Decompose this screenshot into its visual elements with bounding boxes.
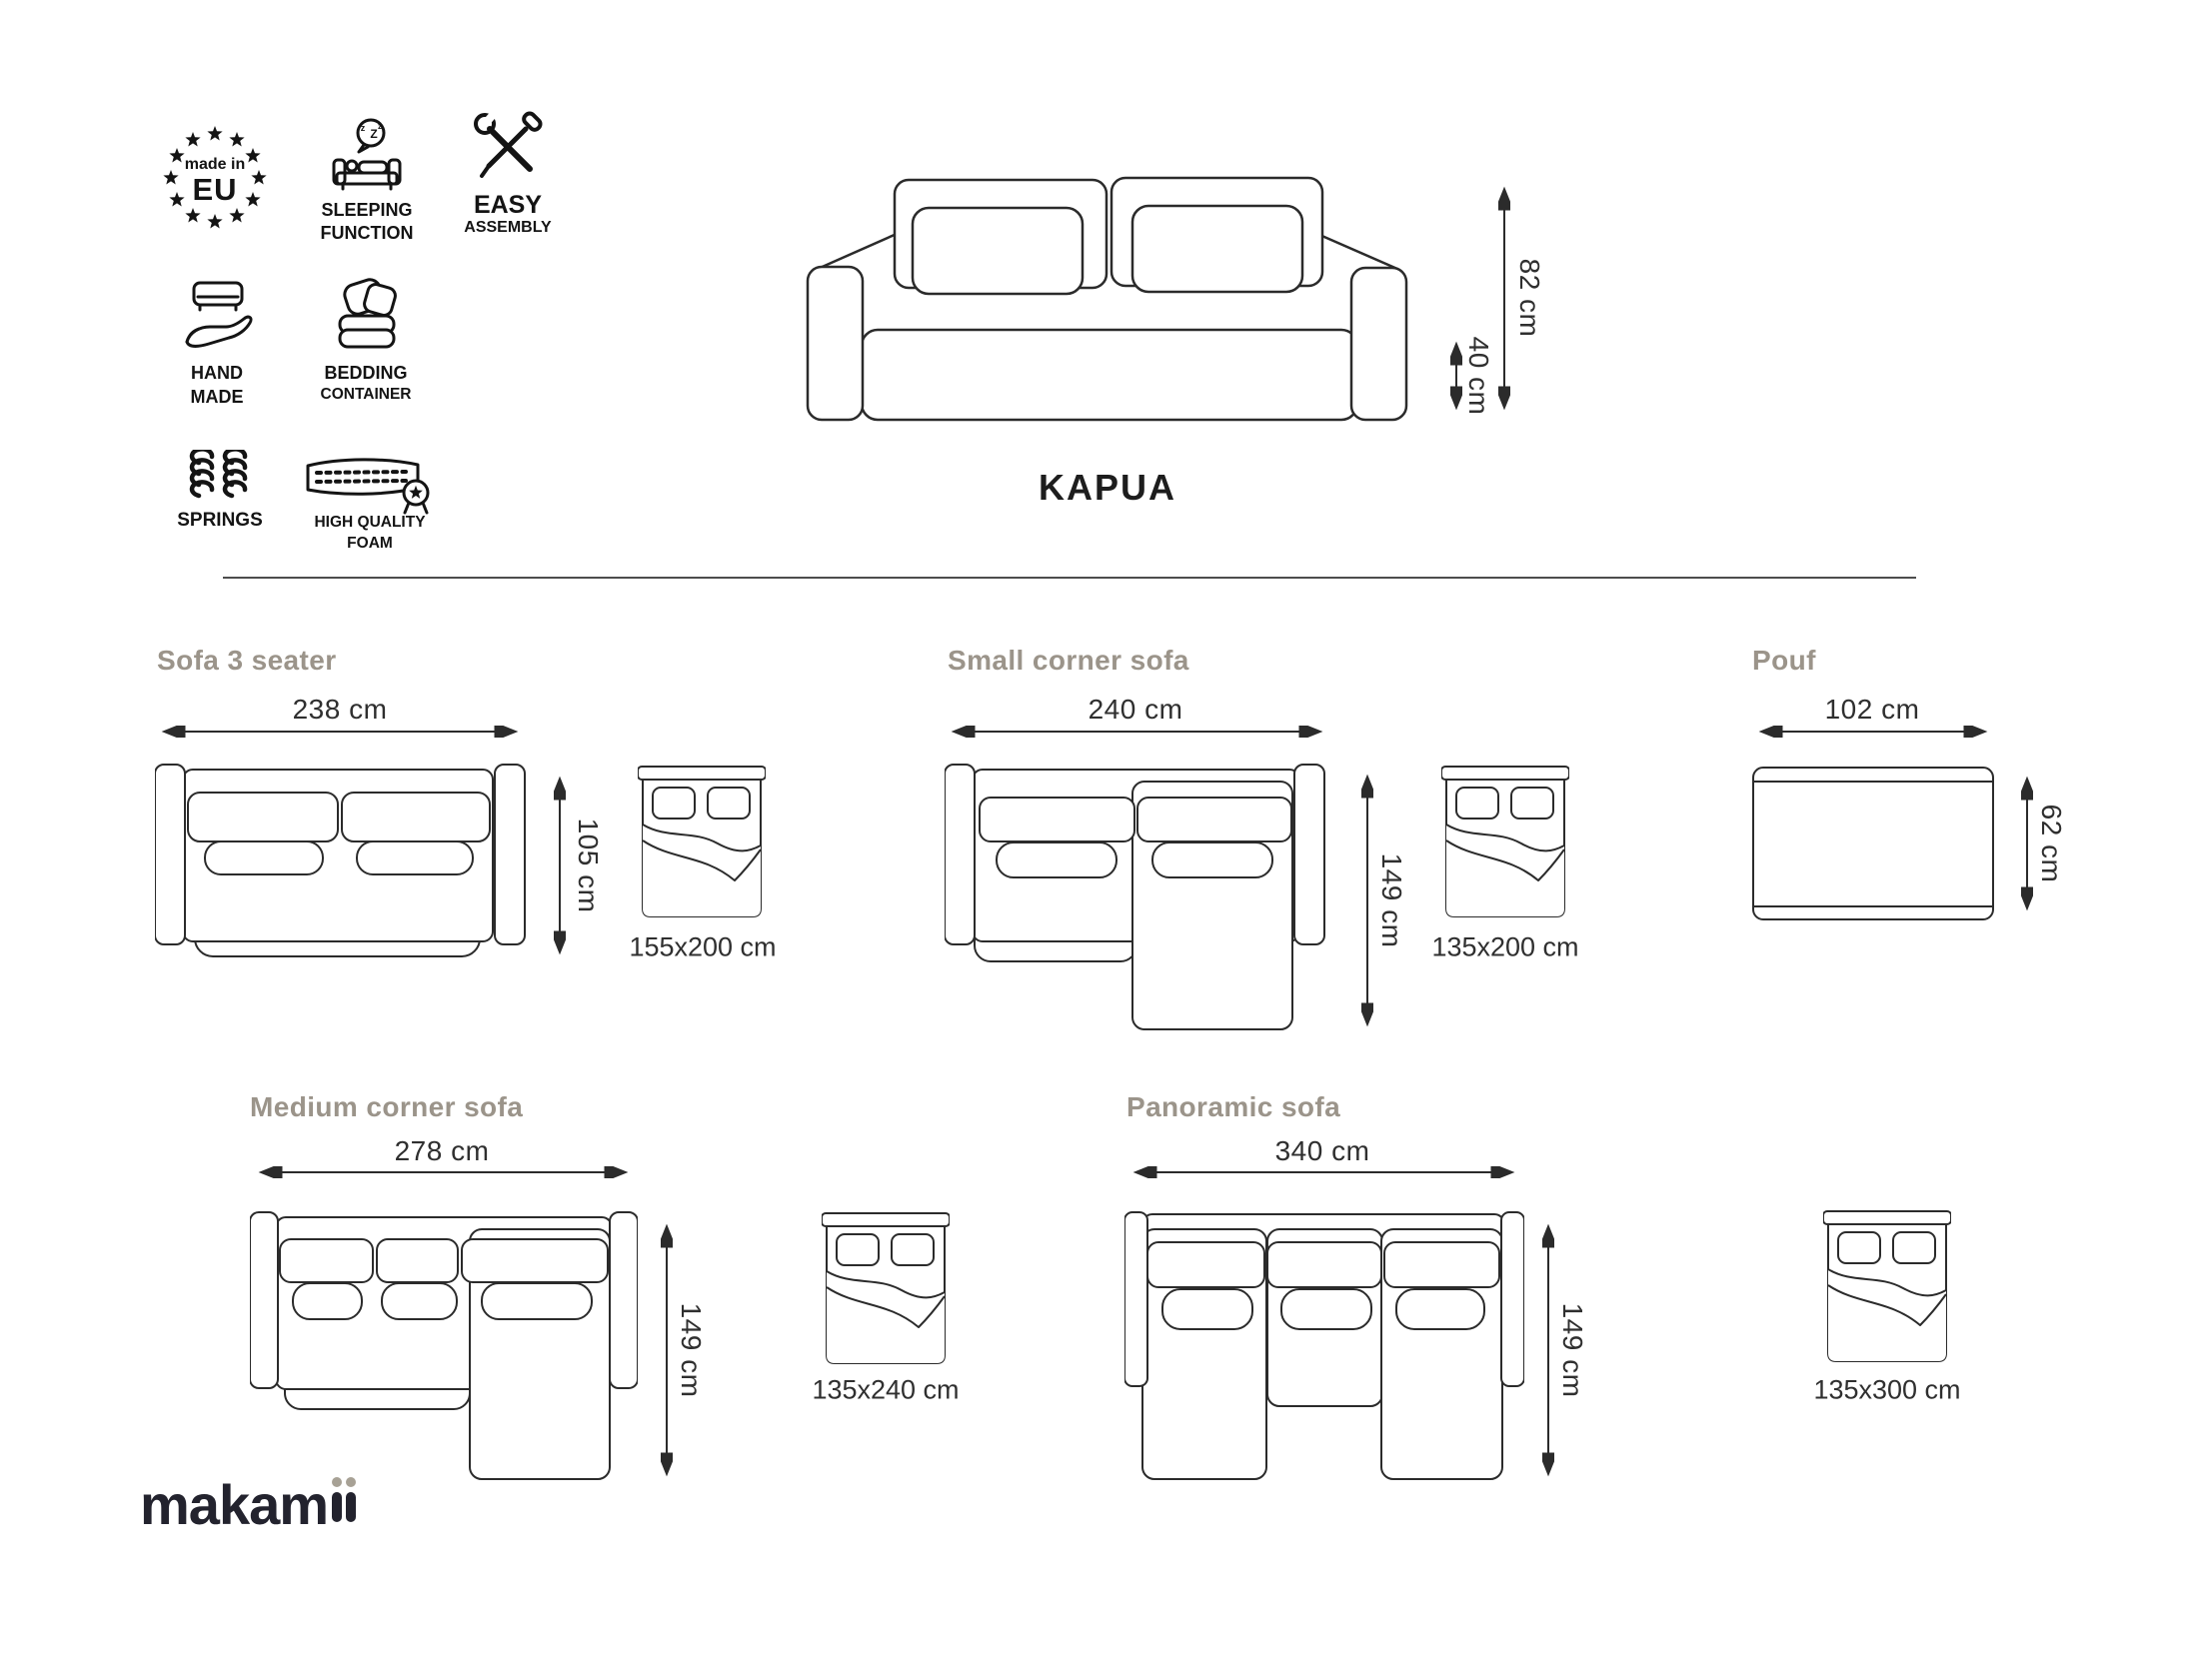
sofa-front-view-drawing: [800, 105, 1414, 425]
sofa3-top-view-drawing: [155, 762, 527, 961]
small-corner-bed-size: 135x200 cm: [1431, 932, 1578, 963]
kapua-dimension-sheet: made in EU z Z z SLEEPING FUNCTION: [0, 0, 2212, 1659]
bedding-container-icon: [330, 278, 402, 362]
medium-corner-width-value: 278 cm: [395, 1135, 490, 1167]
medium-corner-bed-size: 135x240 cm: [812, 1375, 959, 1406]
small-corner-width-value: 240 cm: [1089, 694, 1183, 726]
pouf-depth-arrow: [2021, 770, 2033, 917]
sofa3-depth-arrow: [554, 770, 566, 961]
seat-height-value: 40 cm: [1462, 337, 1494, 416]
z-char: z: [378, 122, 382, 131]
springs-icon: [183, 450, 257, 514]
pouf-depth-value: 62 cm: [2035, 805, 2067, 883]
small-corner-depth-value: 149 cm: [1375, 853, 1407, 948]
easy-assembly-label: EASY ASSEMBLY: [440, 192, 576, 237]
divider-line: [223, 577, 1916, 579]
panoramic-bed-size: 135x300 cm: [1813, 1375, 1960, 1406]
z-char: z: [361, 123, 366, 133]
logo-letter-i: [332, 1477, 342, 1533]
easy-assembly-icon: [468, 110, 548, 190]
medium-corner-width-arrow: [252, 1166, 635, 1178]
small-corner-depth-arrow: [1361, 768, 1373, 1033]
hand-made-icon: [180, 280, 256, 362]
medium-corner-depth-value: 149 cm: [675, 1303, 707, 1398]
sofa3-bed-size: 155x200 cm: [629, 932, 776, 963]
logo-text: makam: [140, 1477, 328, 1533]
small-corner-width-arrow: [945, 726, 1329, 738]
sofa3-depth-value: 105 cm: [572, 819, 604, 913]
eu-label: EU: [162, 172, 268, 208]
height-arrow: [1498, 180, 1510, 417]
hand-made-label: HAND MADE: [155, 361, 279, 409]
variant-title-pouf: Pouf: [1752, 645, 1816, 677]
pouf-top-view-drawing: [1752, 764, 1994, 923]
pouf-width-value: 102 cm: [1825, 694, 1920, 726]
made-in-eu-badge: made in EU: [162, 122, 268, 234]
medium-corner-bed-icon: [822, 1211, 950, 1371]
sofa-height-value: 82 cm: [1513, 259, 1545, 338]
sofa3-bed-icon: [638, 765, 766, 924]
panoramic-width-arrow: [1126, 1166, 1521, 1178]
small-corner-top-view-drawing: [945, 762, 1329, 1033]
logo-letter-i: [346, 1477, 356, 1533]
panoramic-depth-arrow: [1542, 1217, 1554, 1483]
bedding-container-label: BEDDING CONTAINER: [292, 361, 440, 404]
springs-label: SPRINGS: [148, 510, 292, 532]
variant-title-medium-corner: Medium corner sofa: [250, 1091, 523, 1123]
makamii-logo: makam: [140, 1477, 356, 1533]
variant-title-small-corner: Small corner sofa: [948, 645, 1189, 677]
variant-title-sofa3: Sofa 3 seater: [157, 645, 337, 677]
sofa3-width-arrow: [155, 726, 525, 738]
medium-corner-top-view-drawing: [250, 1209, 638, 1481]
medium-corner-depth-arrow: [661, 1217, 673, 1483]
small-corner-bed-icon: [1441, 765, 1569, 924]
sleeping-function-label: SLEEPING FUNCTION: [287, 199, 447, 245]
panoramic-bed-icon: [1823, 1209, 1951, 1369]
pouf-width-arrow: [1752, 726, 1994, 738]
panoramic-top-view-drawing: [1124, 1209, 1524, 1481]
variant-title-panoramic: Panoramic sofa: [1126, 1091, 1340, 1123]
seat-height-arrow: [1450, 335, 1462, 417]
sleeping-function-icon: z Z z: [330, 118, 404, 196]
z-char: Z: [370, 127, 377, 141]
product-name: KAPUA: [1039, 467, 1176, 509]
panoramic-depth-value: 149 cm: [1556, 1303, 1588, 1398]
high-quality-foam-icon: [300, 452, 440, 518]
panoramic-width-value: 340 cm: [1275, 1135, 1370, 1167]
sofa3-width-value: 238 cm: [293, 694, 388, 726]
high-quality-foam-label: HIGH QUALITY FOAM: [296, 512, 444, 554]
